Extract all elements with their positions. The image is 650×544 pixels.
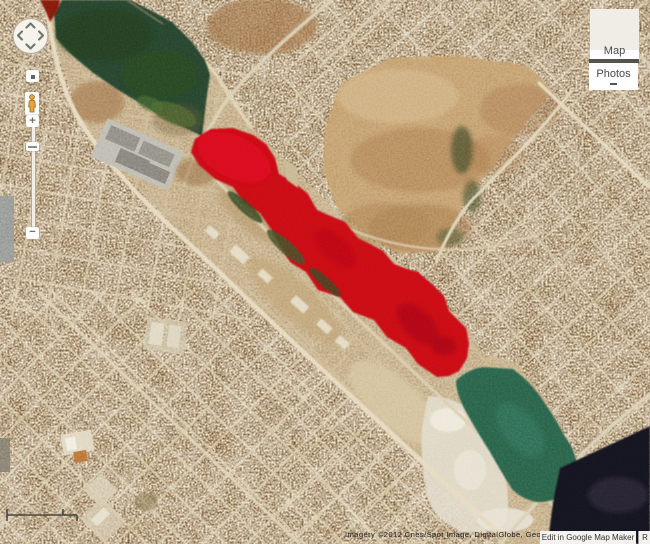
svg-text:Imagery ©2012 Cnes/Spot Image,: Imagery ©2012 Cnes/Spot Image, DigitalGl…	[345, 530, 561, 539]
